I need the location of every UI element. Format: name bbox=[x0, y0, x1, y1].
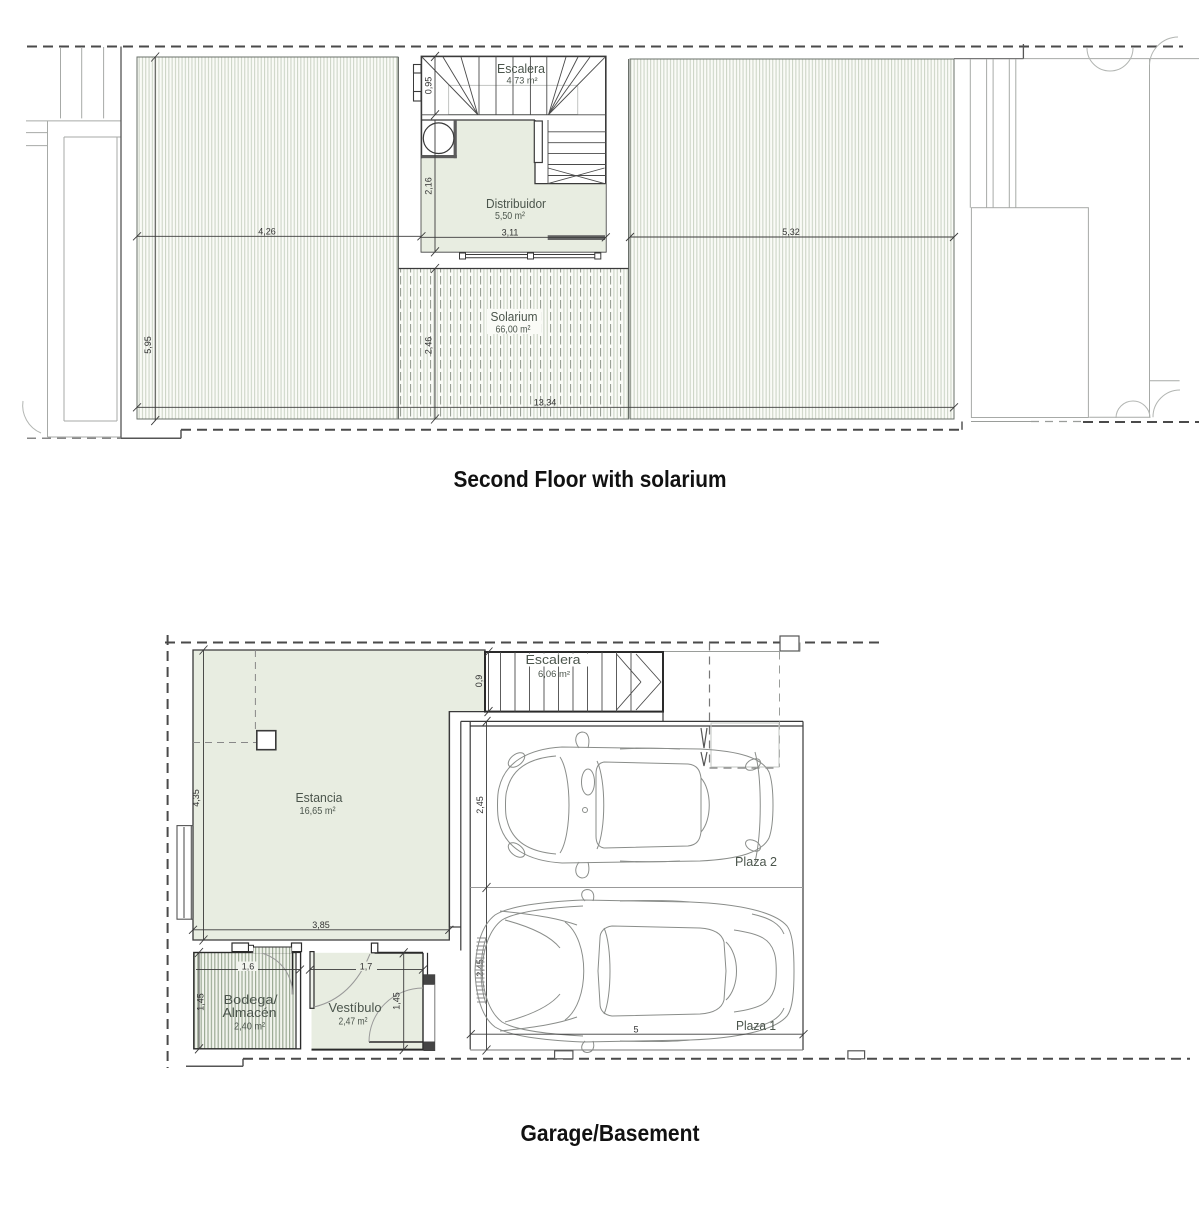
svg-text:5,95: 5,95 bbox=[143, 336, 153, 354]
svg-text:4,35: 4,35 bbox=[191, 789, 201, 807]
svg-text:6,06 m²: 6,06 m² bbox=[538, 669, 570, 679]
svg-text:Vestíbulo: Vestíbulo bbox=[329, 1000, 382, 1015]
svg-text:2,45: 2,45 bbox=[475, 796, 485, 814]
svg-text:Plaza 1: Plaza 1 bbox=[736, 1018, 776, 1033]
svg-text:2,46: 2,46 bbox=[424, 337, 434, 355]
svg-text:Escalera: Escalera bbox=[497, 62, 545, 76]
svg-text:Solarium: Solarium bbox=[491, 309, 538, 324]
svg-text:13,34: 13,34 bbox=[534, 398, 557, 408]
svg-text:1,45: 1,45 bbox=[196, 993, 206, 1011]
svg-text:0,95: 0,95 bbox=[424, 77, 434, 95]
svg-text:Plaza 2: Plaza 2 bbox=[735, 854, 777, 869]
svg-text:Estancia: Estancia bbox=[296, 790, 344, 805]
svg-text:Garage/Basement: Garage/Basement bbox=[521, 1120, 700, 1146]
svg-text:4,73 m²: 4,73 m² bbox=[507, 76, 538, 86]
svg-text:2,47 m²: 2,47 m² bbox=[339, 1016, 368, 1028]
svg-text:5: 5 bbox=[633, 1025, 638, 1035]
svg-text:1,45: 1,45 bbox=[392, 992, 402, 1010]
svg-text:5,32: 5,32 bbox=[782, 227, 800, 237]
svg-text:2,40 m²: 2,40 m² bbox=[234, 1021, 265, 1033]
svg-text:2,16: 2,16 bbox=[424, 177, 434, 195]
svg-text:5,50 m²: 5,50 m² bbox=[495, 210, 525, 222]
svg-text:4,26: 4,26 bbox=[258, 227, 276, 237]
svg-text:1,6: 1,6 bbox=[242, 962, 255, 972]
svg-text:0,9: 0,9 bbox=[474, 675, 484, 688]
svg-text:1,7: 1,7 bbox=[360, 962, 373, 972]
svg-text:3,11: 3,11 bbox=[502, 228, 519, 238]
svg-text:Almacén: Almacén bbox=[223, 1005, 277, 1020]
svg-text:16,65 m²: 16,65 m² bbox=[300, 805, 336, 817]
svg-text:Second Floor with solarium: Second Floor with solarium bbox=[454, 466, 727, 492]
svg-text:66,00 m²: 66,00 m² bbox=[496, 325, 532, 336]
svg-text:Escalera: Escalera bbox=[526, 653, 581, 667]
svg-text:Distribuidor: Distribuidor bbox=[486, 196, 547, 211]
svg-text:3,85: 3,85 bbox=[312, 920, 330, 930]
